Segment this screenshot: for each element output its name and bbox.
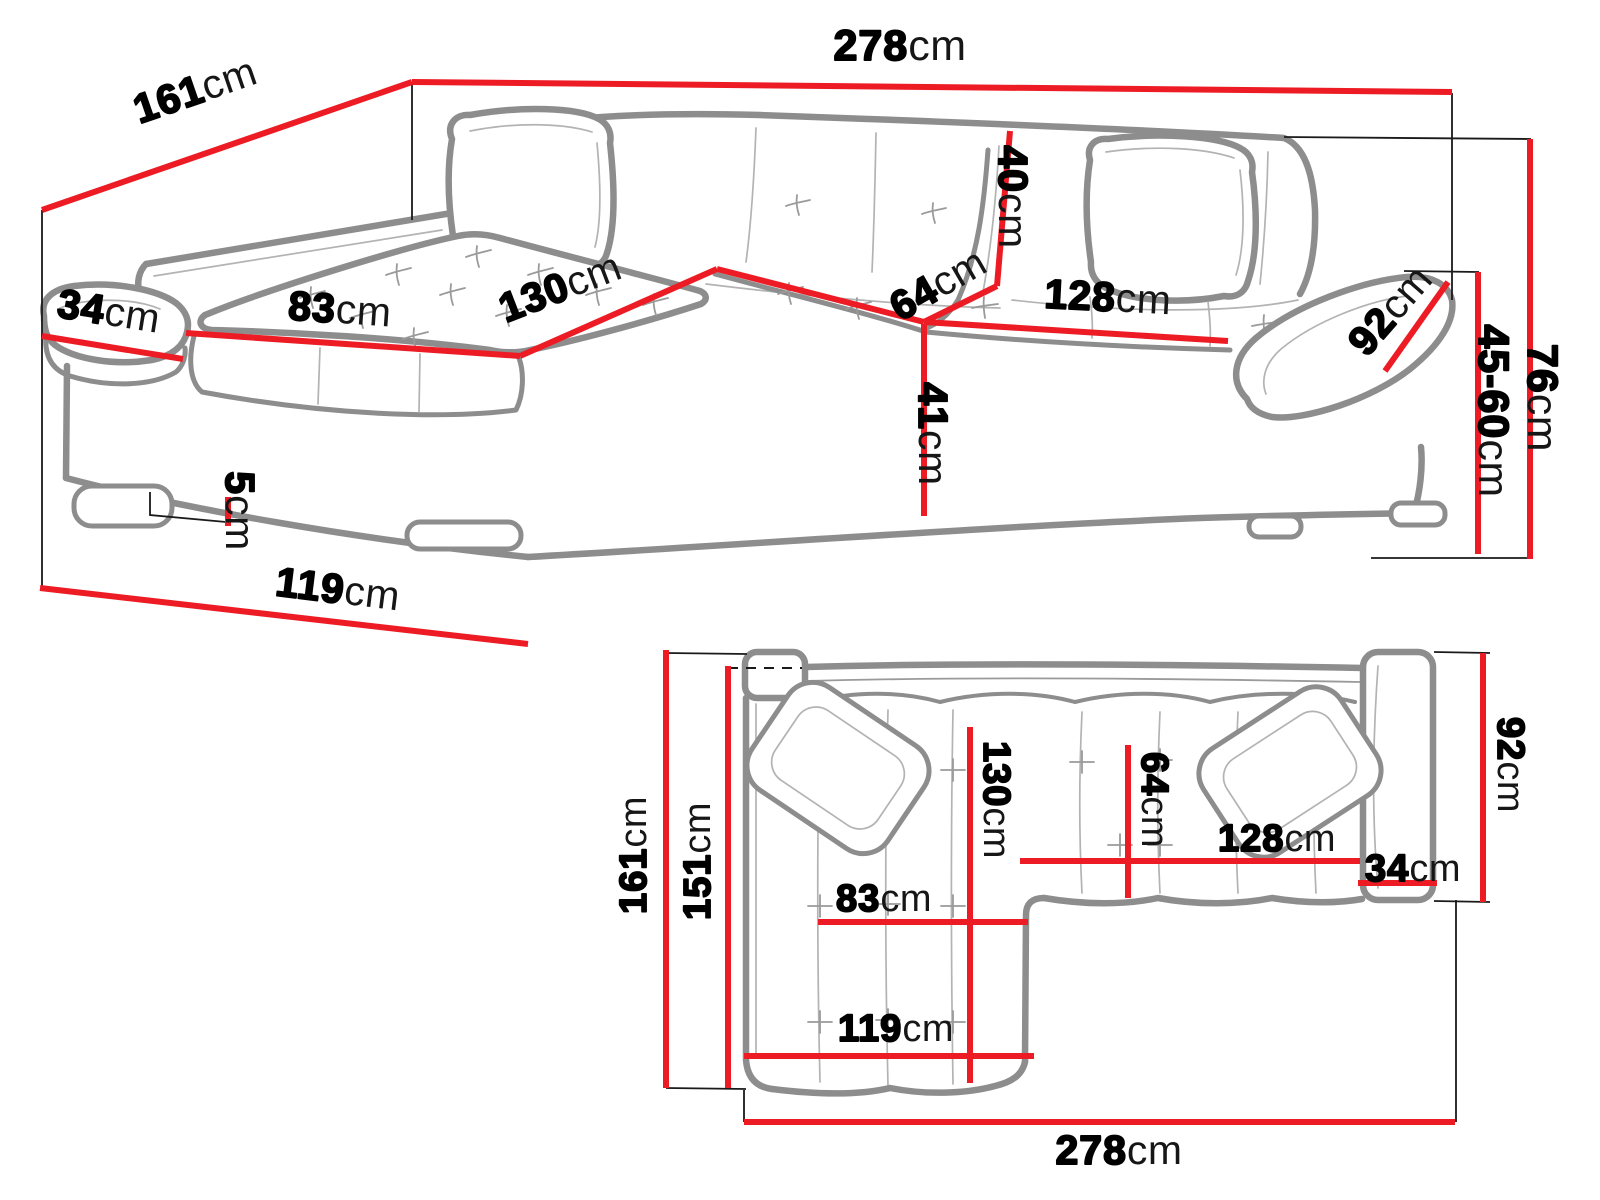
dim-label-151-plan: 151cm [677, 802, 719, 920]
chaise-front-seam [318, 348, 420, 412]
backrest-seam [872, 133, 876, 272]
front-view: 278cm 161cm 34cm 83cm 130cm 64cm 40cm 12… [40, 22, 1566, 644]
extension-top-right [1284, 137, 1531, 139]
tuft-mark [1070, 751, 1094, 773]
dim-label-119: 119cm [273, 559, 402, 620]
tuft-mark [941, 759, 965, 781]
dim-label-40: 40cm [990, 145, 1036, 248]
dim-label-41: 41cm [910, 382, 956, 485]
plan-back-cushions [810, 694, 1355, 702]
tuft-mark [808, 1011, 832, 1033]
sofa-leg [407, 522, 521, 549]
plan-back-edge [806, 664, 1363, 668]
dim-label-92-plan: 92cm [1489, 717, 1531, 813]
dim-label-76: 76cm [1518, 344, 1566, 452]
diagram-canvas: 278cm 161cm 34cm 83cm 130cm 64cm 40cm 12… [0, 0, 1600, 1200]
plan-seat-front-edge [1044, 898, 1362, 903]
sofa-leg [1249, 516, 1301, 537]
dim-label-128-plan: 128cm [1218, 818, 1336, 860]
backrest-seam [1260, 152, 1268, 284]
extension-bottom-left [666, 1088, 746, 1089]
extension-top-left [666, 653, 747, 654]
sofa-dimension-diagram: 278cm 161cm 34cm 83cm 130cm 64cm 40cm 12… [0, 0, 1600, 1200]
plan-view: 161cm 151cm 130cm 83cm 119cm 64cm 128cm … [613, 650, 1531, 1173]
plan-seam [1080, 712, 1082, 893]
dim-label-119-plan: 119cm [838, 1008, 954, 1050]
backrest-tuft-marks [786, 195, 946, 223]
tuft-mark [808, 895, 832, 917]
plan-chaise-front-edge [772, 1062, 1025, 1093]
plan-back-inner [806, 678, 1360, 682]
dim-label-278-plan: 278cm [1055, 1127, 1182, 1173]
dim-label-128: 128cm [1043, 271, 1172, 324]
base-left-edge [66, 366, 67, 478]
dim-label-130-plan: 130cm [975, 741, 1017, 859]
sofa-leg [74, 486, 172, 526]
dim-label-278: 278cm [833, 22, 966, 70]
tuft-mark [786, 195, 810, 215]
extension-92-top [1434, 652, 1490, 653]
dim-label-83-plan: 83cm [836, 878, 932, 920]
dim-label-34-plan: 34cm [1365, 848, 1461, 890]
tuft-mark [922, 203, 946, 223]
dim-label-64-plan: 64cm [1133, 752, 1175, 848]
dim-label-161: 161cm [127, 48, 262, 133]
tuft-mark [941, 895, 965, 917]
dim-label-83: 83cm [287, 282, 393, 335]
dim-line-278 [412, 82, 1452, 92]
dim-label-5: 5cm [217, 471, 263, 550]
dim-label-161-plan: 161cm [613, 796, 655, 914]
backrest-seam [746, 128, 756, 262]
dim-label-45-60: 45-60cm [1469, 324, 1517, 497]
chaise-cushion-top [201, 234, 706, 352]
sofa-leg [1391, 503, 1445, 525]
